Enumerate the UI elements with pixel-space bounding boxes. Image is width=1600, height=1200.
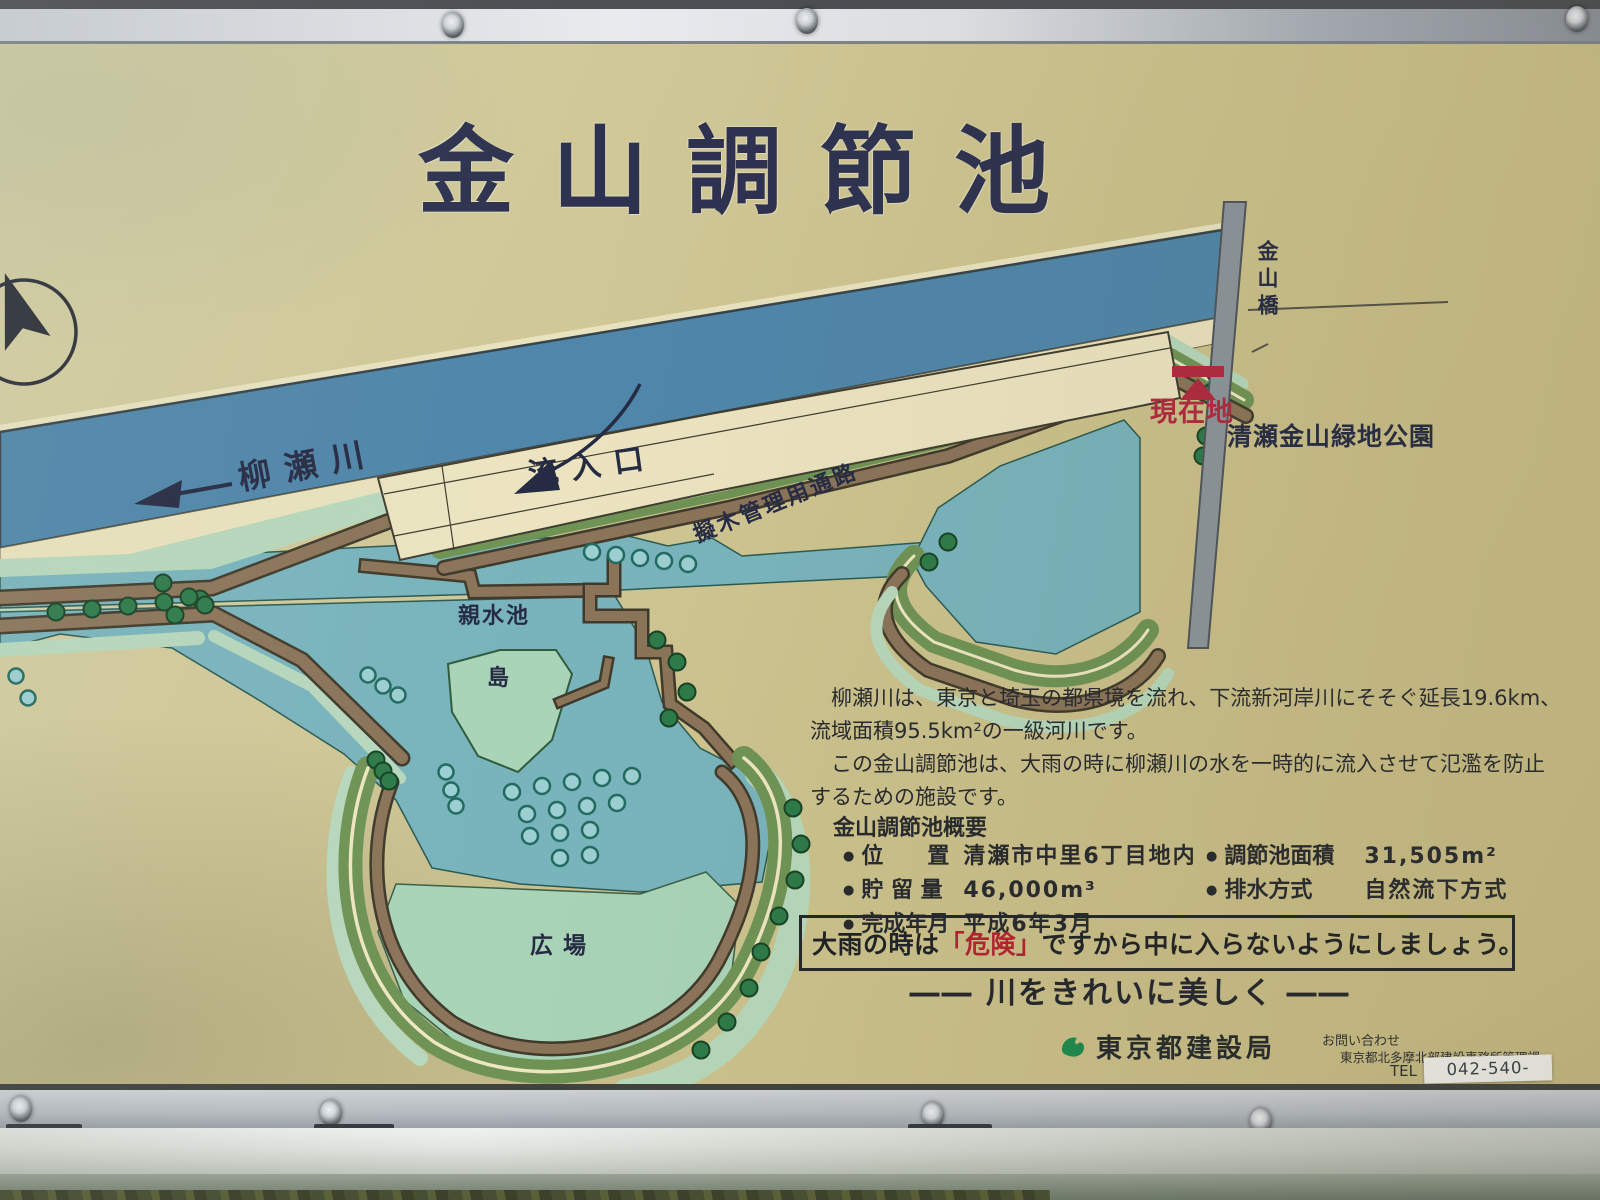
road-tick	[1252, 344, 1268, 352]
bullet-icon: ●	[1206, 883, 1217, 898]
bolt-icon	[442, 12, 464, 38]
description-paragraph: 柳瀬川は、東京と埼玉の都県境を流れ、下流新河岸川にそそぐ延長19.6km、 流域…	[810, 682, 1558, 814]
bolt-icon	[10, 1096, 32, 1122]
island-label: 島	[487, 660, 509, 692]
sign-title: 金山調節池	[418, 94, 1088, 233]
bullet-icon: ●	[843, 849, 854, 864]
bolt-icon	[796, 8, 818, 34]
description-line: 柳瀬川は、東京と埼玉の都県境を流れ、下流新河岸川にそそぐ延長19.6km、	[810, 682, 1558, 715]
guard-beam	[0, 1128, 1600, 1174]
plaza-label: 広場	[530, 926, 596, 960]
overview-item: ●排水方式自然流下方式	[1206, 872, 1508, 904]
overview-item: ●位 置清瀬市中里6丁目地内	[843, 838, 1197, 870]
agency: 東京都建設局	[1060, 1028, 1276, 1065]
contact-tel-number: 042-540-9508	[1424, 1054, 1553, 1083]
frame-bottom-rail	[0, 1090, 1600, 1130]
contact-tel-label: TEL	[1390, 1062, 1417, 1080]
bridge-label: 金山橋	[1252, 240, 1282, 321]
signboard-photo: 金山調節池 柳瀬川 流入口 擬木管理用通路 親水池 島 広場 現在地 金山橋 清…	[0, 0, 1600, 1200]
description-line: この金山調節池は、大雨の時に柳瀬川の水を一時的に流入させて氾濫を防止	[810, 748, 1558, 781]
ginkgo-leaf-icon	[1060, 1034, 1086, 1060]
overview-item: ●貯 留 量46,000m³	[843, 872, 1097, 904]
bullet-icon: ●	[843, 883, 854, 898]
pond-label: 親水池	[458, 598, 530, 630]
north-arrow-icon	[0, 257, 90, 398]
danger-text: 「危険」	[940, 930, 1042, 959]
frame-top-cap	[0, 0, 1600, 9]
park-label: 清瀬金山緑地公園	[1227, 417, 1435, 453]
bullet-icon: ●	[1206, 849, 1217, 864]
agency-name: 東京都建設局	[1096, 1028, 1276, 1065]
current-location-label: 現在地	[1150, 390, 1234, 429]
slogan: ―― 川をきれいに美しく ――	[880, 968, 1380, 1012]
description-line: 流域面積95.5km²の一級河川です。	[810, 715, 1558, 748]
vegetation-strip	[0, 1190, 1050, 1200]
bolt-icon	[320, 1100, 342, 1126]
warning-box: 大雨の時は「危険」ですから中に入らないようにしましょう。	[799, 915, 1515, 971]
overview-item: ●調節池面積31,505m²	[1206, 838, 1498, 870]
bolt-icon	[1566, 6, 1588, 32]
